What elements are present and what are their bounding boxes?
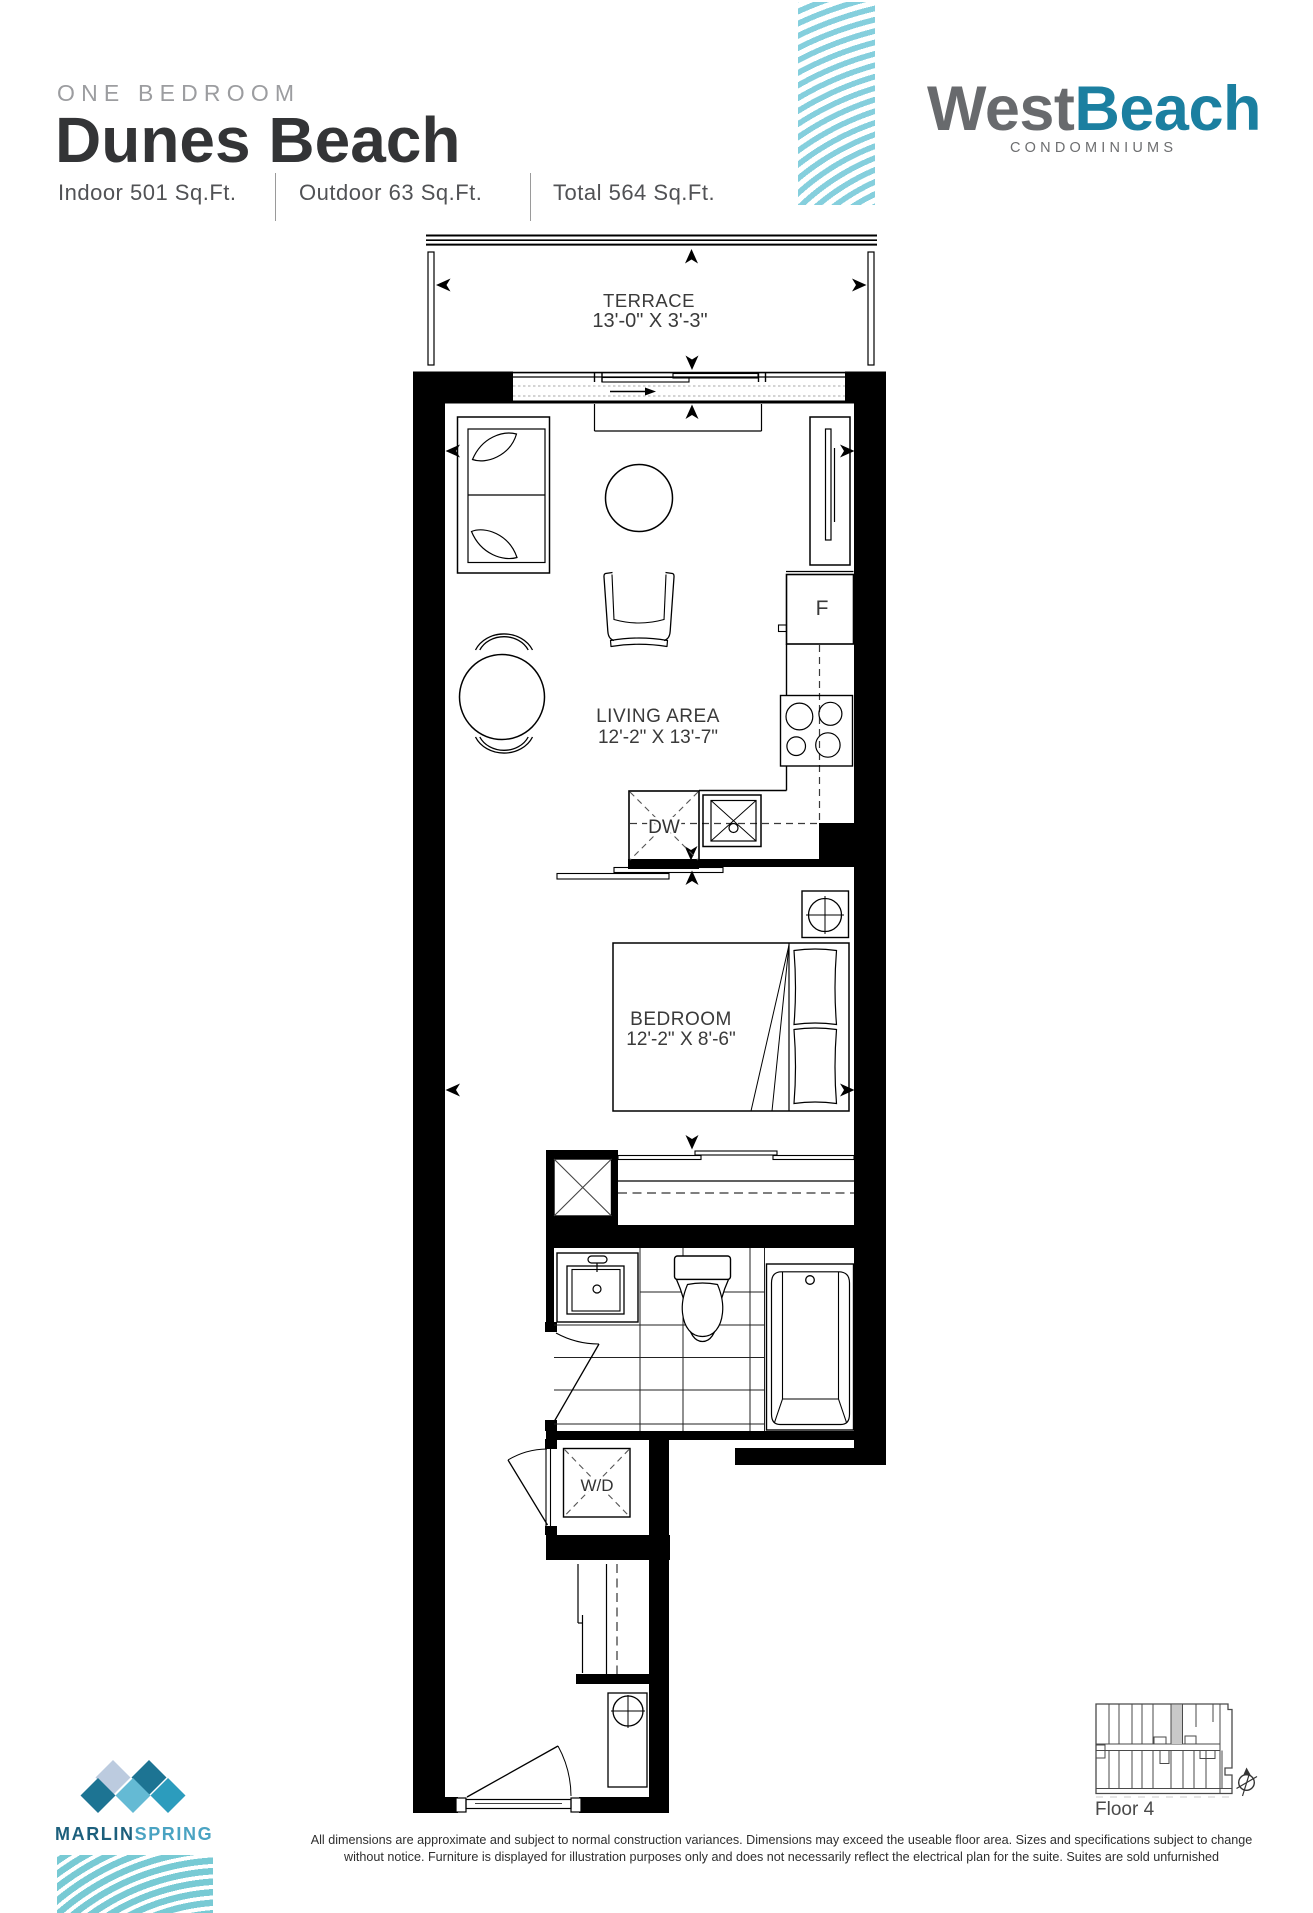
svg-text:LIVING AREA: LIVING AREA <box>596 706 720 727</box>
svg-text:F: F <box>816 597 829 620</box>
svg-text:13'-0" X 3'-3": 13'-0" X 3'-3" <box>592 310 707 332</box>
svg-text:12'-2" X 8'-6": 12'-2" X 8'-6" <box>626 1029 735 1050</box>
svg-text:12'-2" X 13'-7": 12'-2" X 13'-7" <box>598 727 718 748</box>
svg-text:DW: DW <box>648 817 680 838</box>
svg-text:BEDROOM: BEDROOM <box>630 1009 732 1030</box>
svg-text:TERRACE: TERRACE <box>603 290 695 311</box>
svg-text:Floor 4: Floor 4 <box>1095 1799 1155 1820</box>
svg-text:W/D: W/D <box>580 1476 613 1495</box>
